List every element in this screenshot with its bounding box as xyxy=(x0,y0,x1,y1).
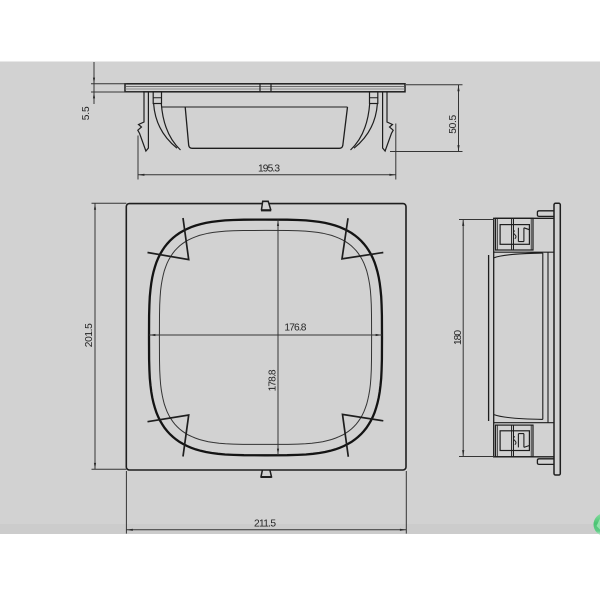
svg-text:195.3: 195.3 xyxy=(258,164,280,175)
svg-text:178.8: 178.8 xyxy=(268,369,279,391)
svg-text:211.5: 211.5 xyxy=(254,518,276,529)
svg-text:180: 180 xyxy=(453,330,464,345)
svg-text:50.5: 50.5 xyxy=(448,114,459,133)
svg-text:5.5: 5.5 xyxy=(81,106,92,120)
svg-text:201.5: 201.5 xyxy=(84,323,95,347)
svg-text:176.8: 176.8 xyxy=(284,323,306,334)
